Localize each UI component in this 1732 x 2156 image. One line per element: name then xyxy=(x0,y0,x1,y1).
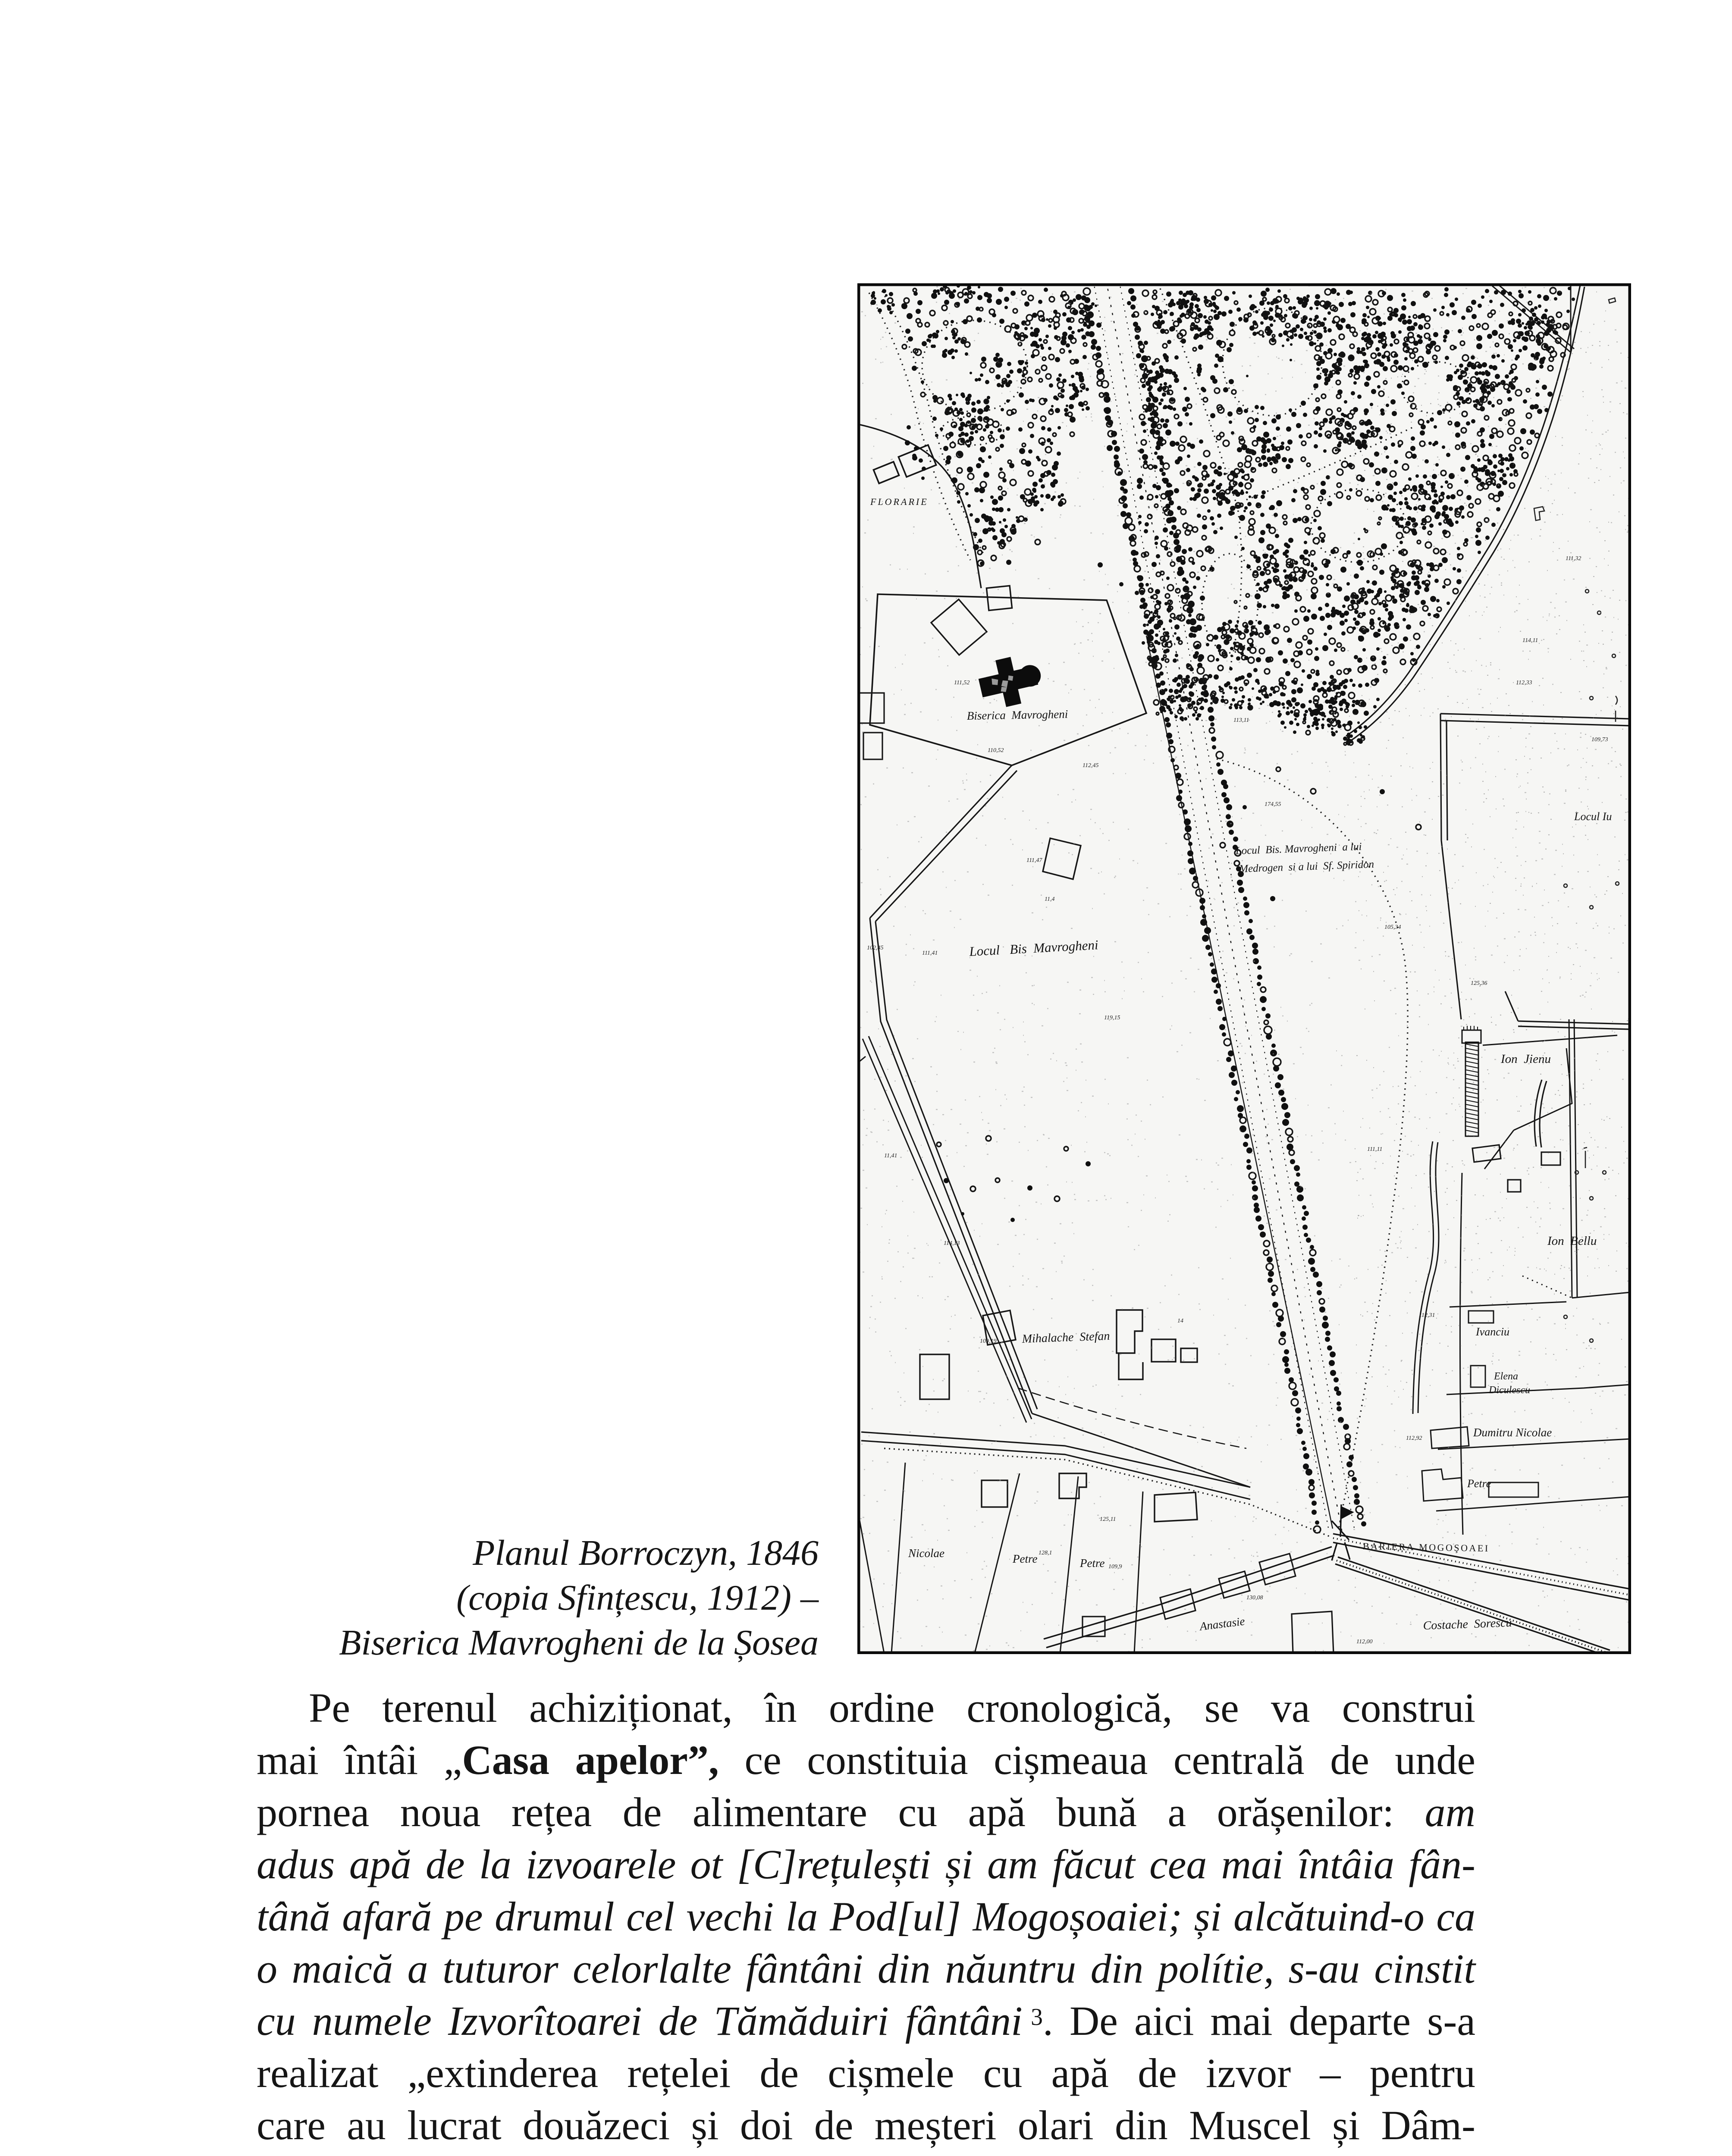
svg-text:128,1: 128,1 xyxy=(1039,1550,1052,1556)
svg-text:Petre: Petre xyxy=(1467,1477,1491,1490)
svg-text:111,52: 111,52 xyxy=(954,680,970,686)
svg-text:Nicolae: Nicolae xyxy=(908,1547,944,1560)
svg-text:Elena: Elena xyxy=(1494,1371,1518,1382)
svg-text:11,4: 11,4 xyxy=(1045,896,1054,903)
svg-text:112,33: 112,33 xyxy=(1516,680,1532,686)
svg-text:109,73: 109,73 xyxy=(1591,736,1608,743)
svg-text:111,11: 111,11 xyxy=(1367,1146,1382,1153)
svg-text:FLORARIE: FLORARIE xyxy=(870,496,929,507)
svg-text:130,08: 130,08 xyxy=(1246,1595,1263,1601)
svg-text:Dumitru Nicolae: Dumitru Nicolae xyxy=(1473,1426,1552,1439)
svg-text:Petre: Petre xyxy=(1012,1552,1037,1565)
svg-text:102,45: 102,45 xyxy=(867,945,884,951)
svg-text:110,52: 110,52 xyxy=(988,747,1004,754)
svg-text:111,41: 111,41 xyxy=(922,950,938,956)
svg-text:105,34: 105,34 xyxy=(1384,924,1401,931)
svg-text:Diculescu: Diculescu xyxy=(1488,1385,1530,1396)
svg-text:125,11: 125,11 xyxy=(1100,1516,1116,1523)
svg-text:112,45: 112,45 xyxy=(1082,762,1098,769)
svg-text:14: 14 xyxy=(1177,1318,1183,1324)
svg-text:174,55: 174,55 xyxy=(1264,801,1281,808)
svg-text:112,00: 112,00 xyxy=(1356,1639,1372,1645)
svg-text:BARIERA MOGOŞOAEI: BARIERA MOGOŞOAEI xyxy=(1363,1541,1490,1554)
svg-text:111,47: 111,47 xyxy=(1026,857,1042,864)
svg-text:Biserica Mavrogheni: Biserica Mavrogheni xyxy=(967,708,1068,722)
svg-text:114,11: 114,11 xyxy=(1522,637,1538,644)
svg-text:Ivanciu: Ivanciu xyxy=(1475,1326,1509,1338)
svg-text:111,32: 111,32 xyxy=(1566,555,1581,562)
svg-text:Petre: Petre xyxy=(1079,1557,1104,1570)
svg-text:Ion Bellu: Ion Bellu xyxy=(1547,1234,1597,1248)
svg-text:Locul Iu: Locul Iu xyxy=(1574,810,1612,823)
svg-text:112,92: 112,92 xyxy=(1406,1435,1422,1442)
svg-text:112,31: 112,31 xyxy=(1419,1312,1435,1319)
svg-text:109,9: 109,9 xyxy=(1108,1564,1122,1570)
svg-text:125,36: 125,36 xyxy=(1471,980,1487,987)
svg-text:113,11: 113,11 xyxy=(1233,717,1249,724)
svg-text:11,41: 11,41 xyxy=(884,1153,897,1159)
svg-text:119,15: 119,15 xyxy=(1104,1015,1120,1021)
